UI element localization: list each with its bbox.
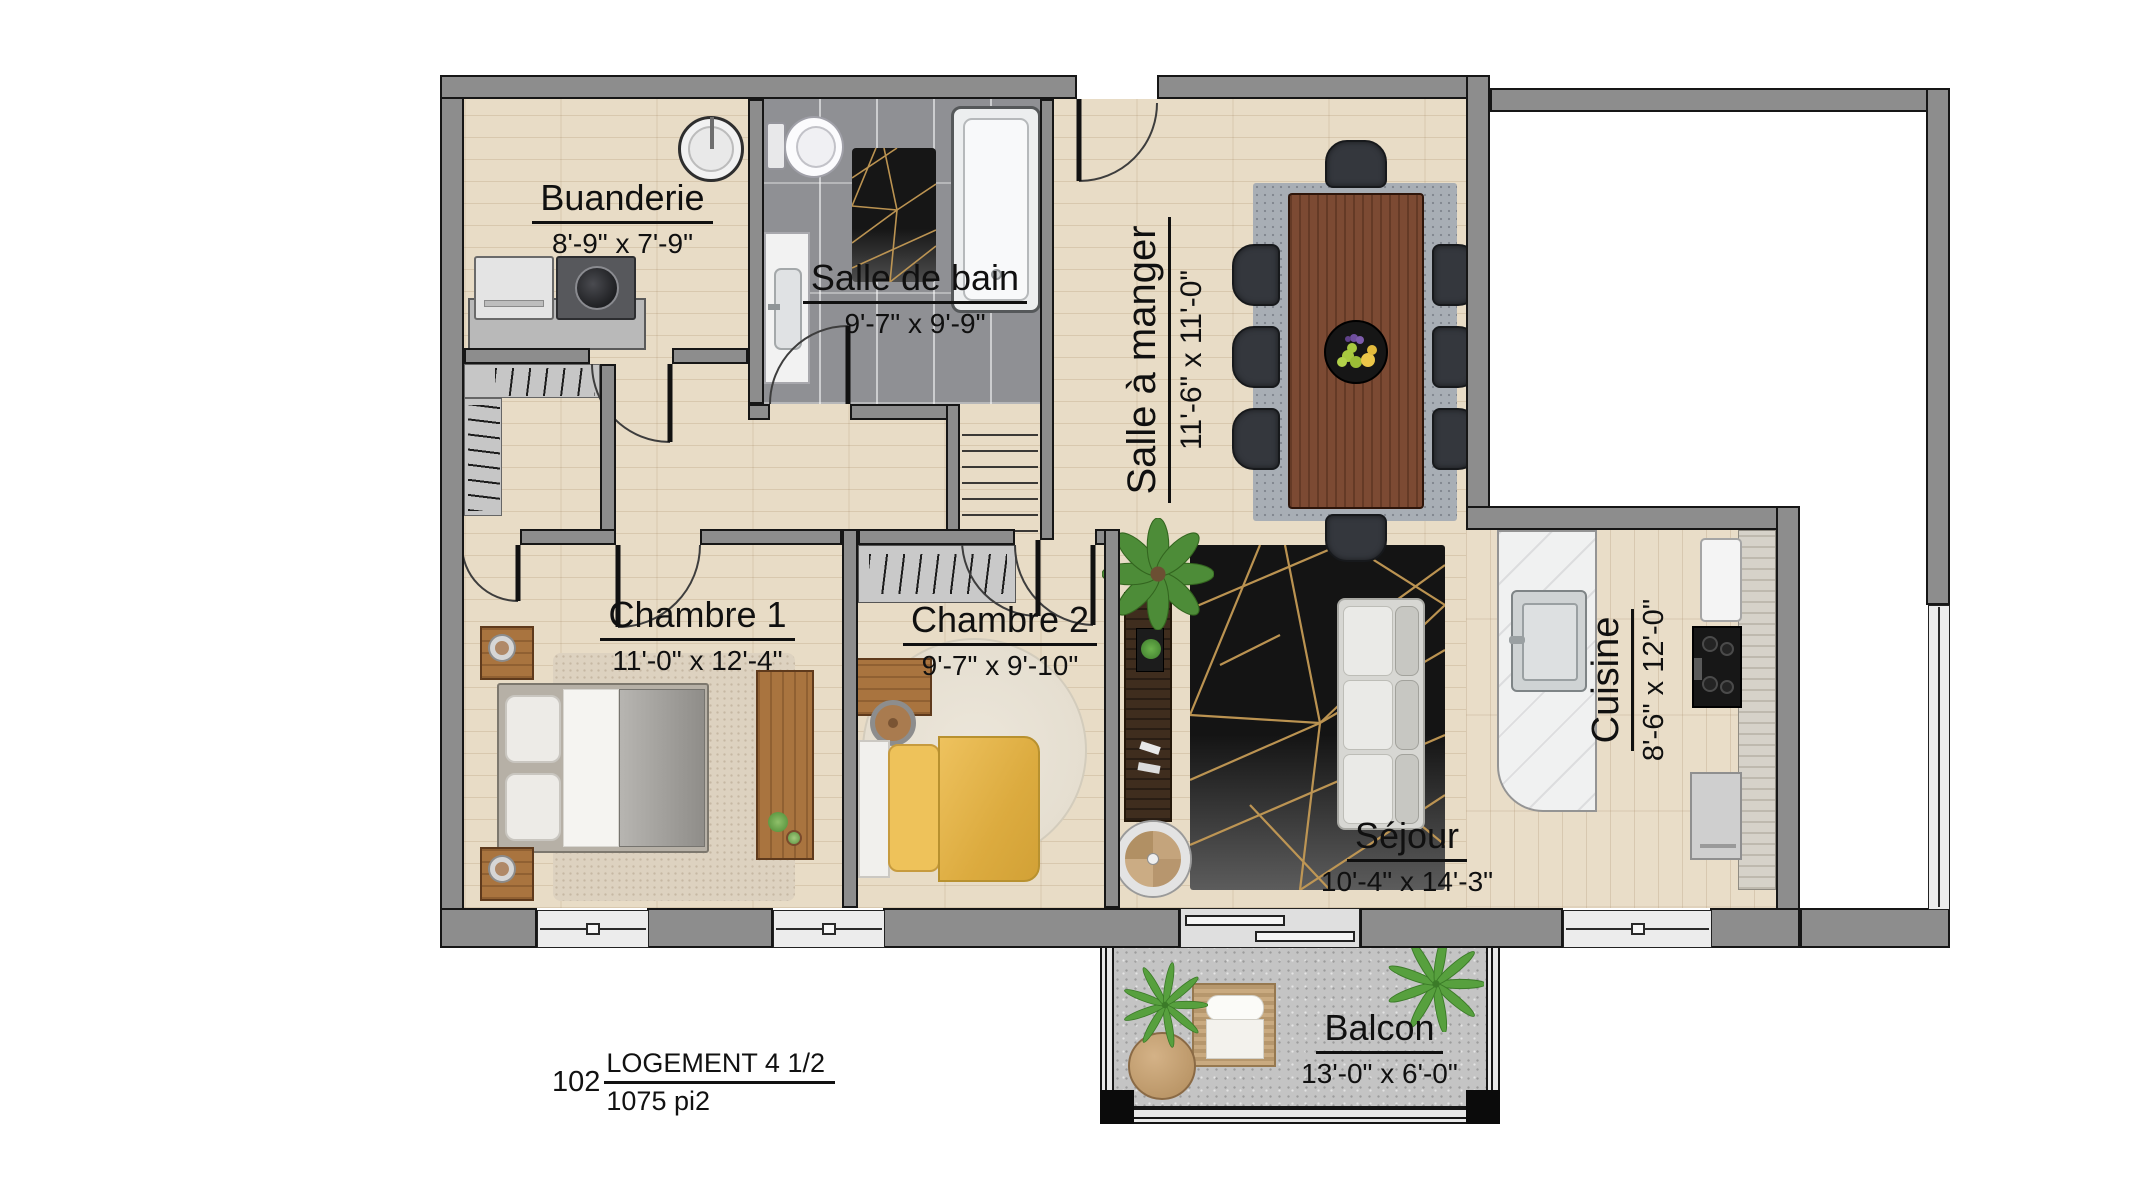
wall-chambre2-sejour [1104, 529, 1120, 908]
lamp-icon [490, 857, 514, 881]
wall-chambre1-top [700, 529, 842, 545]
wall-kitchen-top [1466, 506, 1800, 530]
unit-type: LOGEMENT 4 1/2 [604, 1048, 835, 1084]
wall-neighbor-right [1926, 88, 1950, 605]
wall-chambre1-chambre2 [842, 529, 858, 908]
washer-icon [474, 256, 554, 320]
wall-neighbor-top [1490, 88, 1950, 112]
window-chambre1 [537, 910, 649, 948]
room-name: Salle de bain [803, 258, 1027, 304]
wall-wic-right [600, 364, 616, 545]
room-dims: 8'-9" x 7'-9" [500, 224, 745, 259]
balcony-rail-bottom [1100, 1106, 1500, 1124]
wall-buanderie-bottom [672, 348, 748, 364]
floor-plan: Buanderie 8'-9" x 7'-9" Salle de bain 9'… [0, 0, 2133, 1200]
planter-icon [1136, 628, 1164, 672]
dining-chair-icon [1325, 140, 1387, 188]
sliding-door-balcony [1180, 908, 1360, 948]
wall-bottom [1360, 908, 1563, 948]
succulent-icon [768, 812, 788, 832]
wall-top-right [1157, 75, 1490, 99]
room-dims: 9'-7" x 9'-9" [770, 304, 1060, 339]
room-name: Séjour [1347, 816, 1467, 862]
window-cuisine [1563, 910, 1712, 948]
lamp-icon [490, 636, 514, 660]
wall-dining-right [1466, 75, 1490, 530]
wall-buanderie-bottom [464, 348, 590, 364]
wic-shelf-top [464, 364, 600, 398]
wall-top-left [440, 75, 1077, 99]
room-dims: 8'-6" x 12'-0" [1634, 530, 1670, 830]
wall-linen-left [946, 404, 960, 540]
room-label-chambre2: Chambre 2 9'-7" x 9'-10" [880, 600, 1120, 682]
room-dims: 11'-0" x 12'-4" [575, 641, 820, 676]
bed-icon [497, 683, 709, 853]
room-name: Salle à manger [1120, 217, 1171, 502]
toilet-icon [766, 116, 846, 178]
wall-bath-bottom [748, 404, 770, 420]
room-label-cuisine: Cuisine 8'-6" x 12'-0" [1585, 530, 1695, 830]
unit-label: 102 LOGEMENT 4 1/2 1075 pi2 [552, 1048, 835, 1117]
wall-buanderie-bath [748, 99, 764, 404]
room-name: Chambre 2 [903, 600, 1097, 646]
unit-number: 102 [552, 1066, 600, 1099]
wall-bottom [1710, 908, 1800, 948]
linen-closet-shelves [962, 422, 1038, 532]
centerpiece-bowl-icon [1322, 318, 1390, 386]
window-neighbor [1928, 605, 1950, 910]
room-label-sejour: Séjour 10'-4" x 14'-3" [1292, 816, 1522, 898]
wall-wic-bottom [520, 529, 616, 545]
room-dims: 9'-7" x 9'-10" [880, 646, 1120, 681]
room-label-chambre1: Chambre 1 11'-0" x 12'-4" [575, 595, 820, 677]
unit-area: 1075 pi2 [604, 1084, 835, 1117]
room-name: Balcon [1316, 1008, 1442, 1054]
side-table-icon [1116, 822, 1190, 896]
room-dims: 11'-6" x 11'-0" [1171, 190, 1209, 530]
room-label-balcon: Balcon 13'-0" x 6'-0" [1272, 1008, 1487, 1090]
wall-bottom [883, 908, 1180, 948]
wall-bottom [647, 908, 773, 948]
balcony-post [1100, 1090, 1134, 1124]
succulent-icon [786, 830, 802, 846]
bed-icon [858, 736, 1040, 882]
wall-bottom-neighbor [1800, 908, 1950, 948]
laundry-sink-icon [678, 116, 744, 182]
kitchen-counter [1738, 530, 1776, 890]
wic-shelf-left [464, 398, 502, 516]
dresser-icon [756, 670, 814, 860]
stove-icon [1692, 626, 1742, 708]
kitchen-sink-icon [1511, 590, 1587, 692]
fridge-icon [1700, 538, 1742, 622]
balcony-post [1466, 1090, 1500, 1124]
room-label-salle-a-manger: Salle à manger 11'-6" x 11'-0" [1120, 190, 1240, 530]
room-name: Chambre 1 [600, 595, 794, 641]
nightstand-icon [480, 626, 534, 680]
room-dims: 13'-0" x 6'-0" [1272, 1054, 1487, 1089]
nightstand-icon [480, 847, 534, 901]
chambre2-closet [858, 545, 1016, 603]
room-label-buanderie: Buanderie 8'-9" x 7'-9" [500, 178, 745, 260]
room-name: Buanderie [532, 178, 712, 224]
kitchen-cabinet-icon [1690, 772, 1742, 860]
wall-chambre2-top [858, 529, 1015, 545]
balcony-plant-icon [1122, 962, 1208, 1048]
wall-left [440, 75, 464, 948]
sofa-icon [1337, 598, 1425, 830]
wall-bottom [440, 908, 537, 948]
room-dims: 10'-4" x 14'-3" [1292, 862, 1522, 897]
window-chambre2 [773, 910, 885, 948]
dining-chair-icon [1325, 514, 1387, 562]
wall-bath-bottom [850, 404, 960, 420]
room-name: Cuisine [1585, 609, 1634, 752]
wall-kitchen-right [1776, 506, 1800, 948]
room-label-salle-de-bain: Salle de bain 9'-7" x 9'-9" [770, 258, 1060, 340]
dryer-icon [556, 256, 636, 320]
